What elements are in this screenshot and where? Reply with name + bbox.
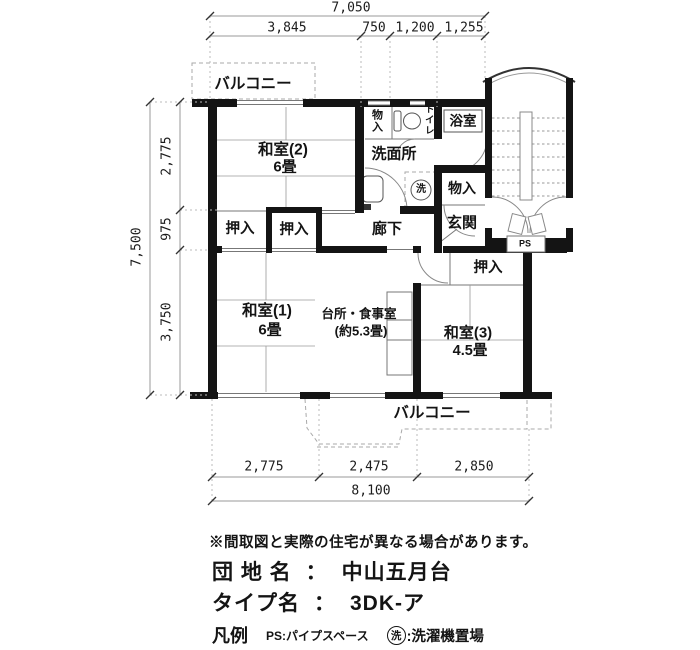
label-oshiire-1: 押入 — [226, 222, 255, 237]
label-wash-symbol: 洗 — [416, 185, 426, 195]
label-washitsu2-size: 6畳 — [273, 160, 296, 175]
estate-separator: ： — [306, 556, 328, 586]
estate-name-row: 団 地 名 ： 中山五月台 — [212, 556, 452, 586]
drain-icon — [364, 204, 371, 210]
label-dk: 台所・食事室 — [321, 308, 396, 321]
dim-bottom-1: 2,475 — [349, 461, 388, 474]
type-name-row: タイプ名 ： 3DK-ア — [212, 587, 425, 617]
toilet-bowl-icon — [404, 113, 421, 129]
wash-circle-icon: 洗 — [387, 626, 406, 645]
label-washitsu1: 和室(1) — [242, 303, 292, 319]
legend-wash-text: :洗濯機置場 — [407, 625, 484, 646]
dim-bottom-2: 2,850 — [454, 461, 493, 474]
label-oshiire-3: 押入 — [474, 261, 503, 276]
type-label: タイプ名 — [212, 587, 300, 617]
disclaimer-note: ※間取図と実際の住宅が異なる場合があります。 — [209, 531, 538, 552]
stairs-icon — [483, 68, 575, 234]
washbasin-icon — [362, 176, 383, 202]
label-monoire-mid: 物入 — [448, 181, 476, 195]
dim-left-total: 7,500 — [131, 227, 144, 266]
dim-bottom-total: 8,100 — [351, 485, 390, 498]
label-rouka: 廊下 — [372, 222, 402, 237]
legend-wash-item: 洗 :洗濯機置場 — [387, 625, 484, 646]
label-genkan: 玄関 — [447, 216, 477, 231]
dim-top-0: 3,845 — [267, 22, 306, 35]
label-washitsu3: 和室(3) — [444, 326, 492, 341]
dimension-lines — [146, 12, 533, 505]
label-senmenjo: 洗面所 — [371, 147, 416, 162]
dim-top-3: 1,255 — [444, 22, 483, 35]
dim-top-total: 7,050 — [331, 2, 370, 15]
legend-ps-text: PS:パイプスペース — [266, 627, 369, 644]
label-balcony-bottom: バルコニー — [393, 405, 470, 421]
type-value: 3DK-ア — [350, 587, 425, 617]
estate-value: 中山五月台 — [342, 556, 452, 586]
washitsu3-door-arc — [418, 253, 448, 283]
label-balcony-top: バルコニー — [214, 76, 291, 92]
estate-label: 団 地 名 — [212, 556, 292, 586]
disclaimer-text: ※間取図と実際の住宅が異なる場合があります。 — [209, 531, 538, 552]
dim-bottom-0: 2,775 — [244, 461, 283, 474]
label-washitsu2: 和室(2) — [258, 142, 308, 158]
dim-left-0: 2,775 — [161, 136, 174, 175]
dim-top-2: 1,200 — [395, 22, 434, 35]
label-toilet: トイレ — [423, 104, 433, 136]
legend-row: 凡例 PS:パイプスペース 洗 :洗濯機置場 — [212, 622, 484, 648]
label-washitsu3-size: 4.5畳 — [453, 344, 488, 359]
label-dk-size: (約5.3畳) — [335, 325, 388, 338]
label-washitsu1-size: 6畳 — [258, 323, 281, 338]
kitchen-counter — [387, 292, 412, 375]
dim-top-1: 750 — [362, 22, 385, 35]
dimension-ticks — [146, 12, 533, 505]
floorplan-page: バルコニー 和室(2) 6畳 物入 トイレ 浴室 洗面所 洗 物入 押入 押入 … — [0, 0, 700, 650]
label-bath: 浴室 — [450, 114, 477, 128]
label-oshiire-2: 押入 — [280, 223, 309, 238]
type-separator: ： — [314, 587, 336, 617]
toilet-icon — [394, 111, 401, 131]
label-monoire-top: 物入 — [371, 109, 382, 133]
dim-left-2: 3,750 — [161, 302, 174, 341]
legend-label: 凡例 — [212, 622, 248, 648]
dim-left-1: 975 — [161, 217, 174, 240]
label-ps: PS — [519, 240, 531, 249]
